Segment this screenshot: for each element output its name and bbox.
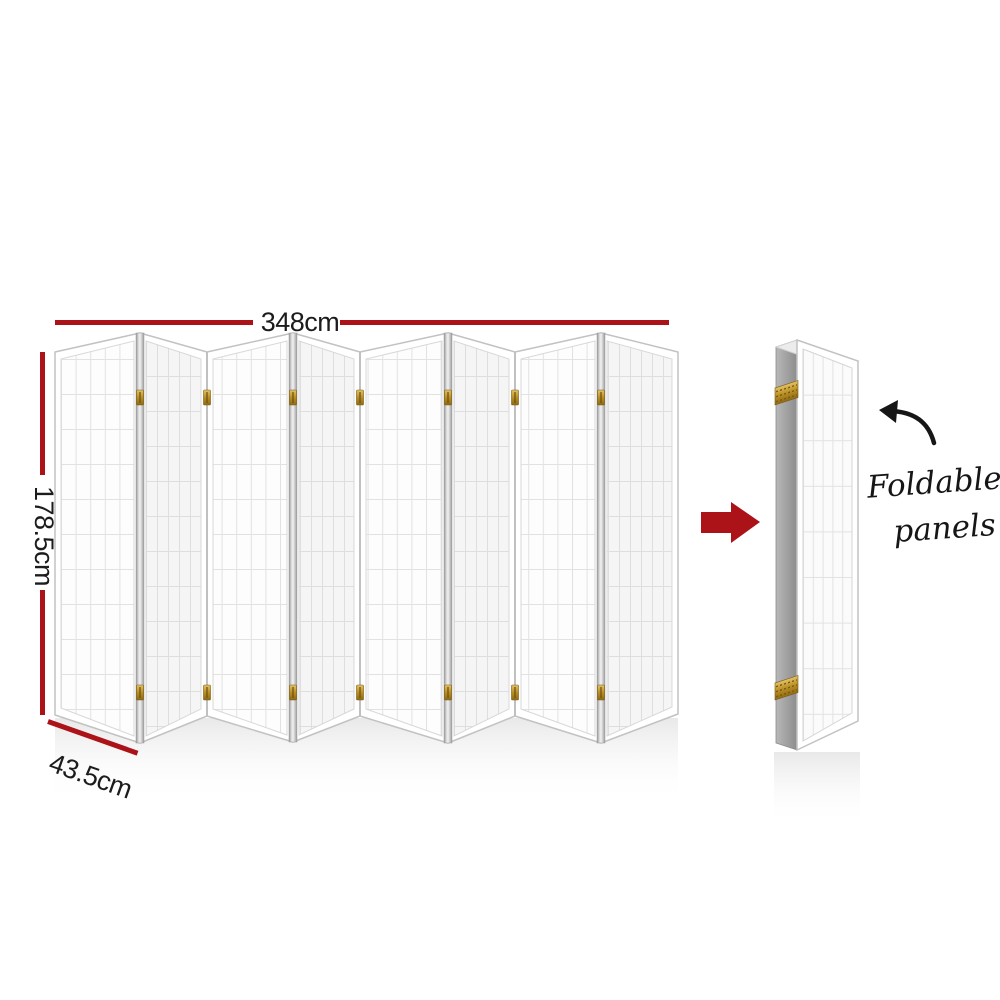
product-diagram: 348cm 178.5cm 43.5cm Foldable panels (0, 0, 1000, 1000)
arrow-right-icon (701, 502, 760, 543)
foldable-panels-annotation: Foldable panels (853, 455, 1000, 558)
folding-screen-unfolded (55, 333, 678, 803)
annotation-line-2: panels (863, 500, 1000, 557)
width-dimension-line-left (55, 320, 253, 325)
folded-stack-grid (803, 349, 852, 741)
height-dimension-line-upper (40, 352, 45, 475)
height-dimension-label: 178.5cm (29, 476, 59, 596)
width-dimension-label: 348cm (240, 306, 360, 338)
curved-arrow-icon (879, 400, 934, 443)
height-dimension-line-lower (40, 590, 45, 715)
width-dimension-line-right (340, 320, 669, 325)
floor-reflection (774, 752, 860, 827)
folding-screen-folded (774, 340, 860, 827)
room-divider-diagram-graphic (0, 0, 1000, 1000)
annotation-line-1: Foldable (866, 460, 1000, 505)
